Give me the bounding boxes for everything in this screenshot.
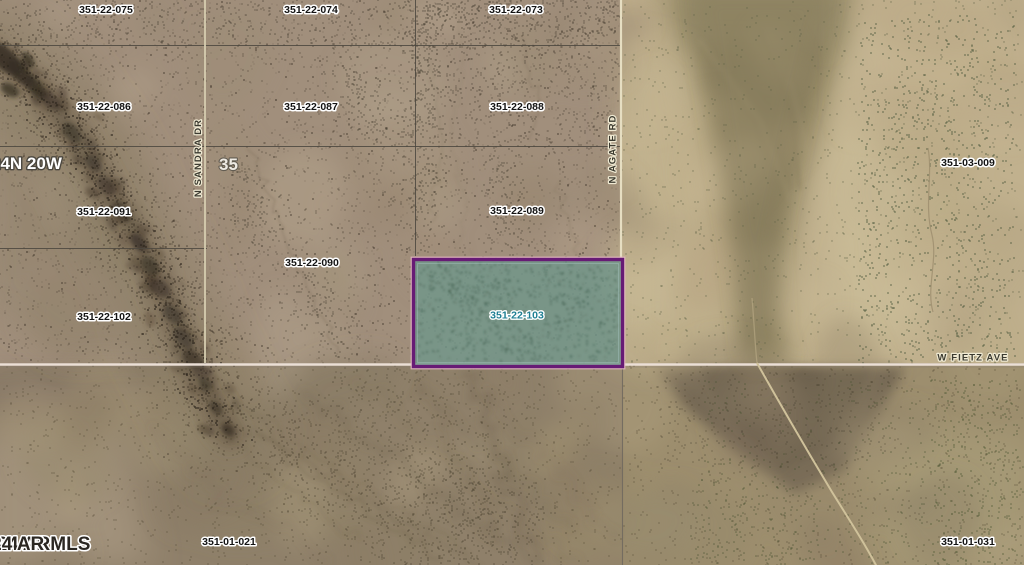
svg-text:351-22-086: 351-22-086 <box>77 101 131 113</box>
svg-text:351-22-074: 351-22-074 <box>284 4 338 16</box>
svg-text:W FIETZ AVE: W FIETZ AVE <box>937 353 1008 364</box>
svg-text:351-01-021: 351-01-021 <box>202 536 256 548</box>
svg-text:351-22-090: 351-22-090 <box>285 257 339 269</box>
svg-text:351-22-087: 351-22-087 <box>284 101 338 113</box>
svg-text:351-22-091: 351-22-091 <box>77 206 131 218</box>
svg-text:351-01-031: 351-01-031 <box>941 536 995 548</box>
svg-text:N AGATE RD: N AGATE RD <box>608 114 619 183</box>
svg-text:24N 20W: 24N 20W <box>0 154 63 173</box>
svg-text:351-22-089: 351-22-089 <box>490 205 544 217</box>
svg-text:©2024 AR: ©2024 AR <box>0 534 45 555</box>
svg-text:351-22-102: 351-22-102 <box>77 311 131 323</box>
svg-text:351-22-075: 351-22-075 <box>79 4 133 16</box>
svg-text:N SANDRA DR: N SANDRA DR <box>193 119 204 197</box>
svg-text:351-03-009: 351-03-009 <box>941 157 995 169</box>
svg-text:351-22-103: 351-22-103 <box>490 310 544 322</box>
svg-text:351-22-088: 351-22-088 <box>490 101 544 113</box>
svg-text:351-22-073: 351-22-073 <box>489 4 543 16</box>
svg-text:35: 35 <box>219 155 238 174</box>
